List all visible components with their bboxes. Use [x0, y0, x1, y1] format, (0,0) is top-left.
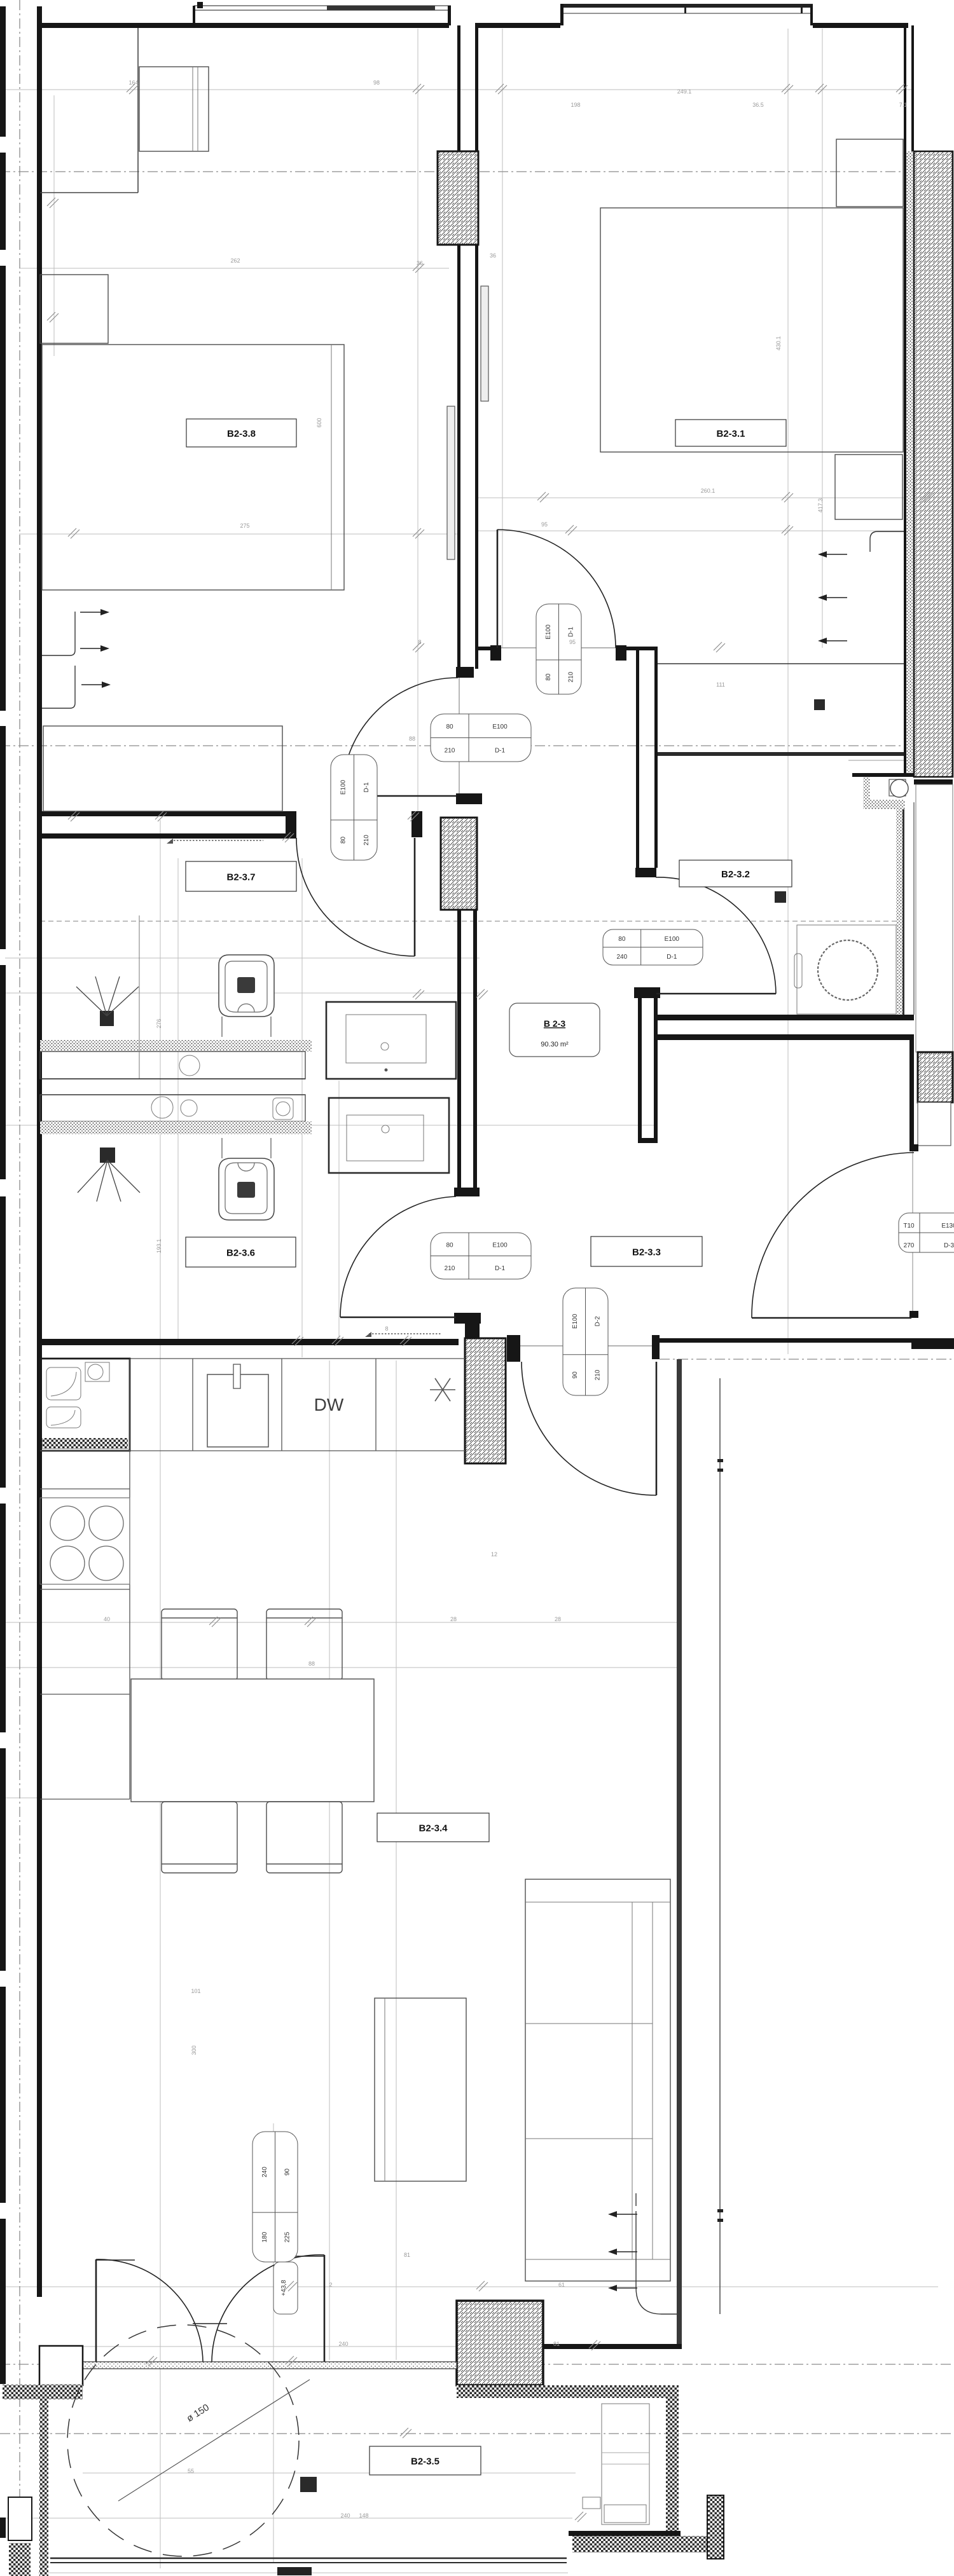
svg-text:28: 28 [555, 1616, 561, 1622]
svg-text:88: 88 [409, 736, 415, 742]
svg-text:210: 210 [445, 747, 455, 754]
svg-text:417.3: 417.3 [817, 498, 824, 513]
svg-text:2: 2 [329, 2282, 332, 2288]
svg-text:B2-3.1: B2-3.1 [716, 428, 745, 439]
svg-text:300: 300 [191, 2045, 197, 2055]
svg-text:B2-3.8: B2-3.8 [227, 428, 256, 439]
svg-text:E100: E100 [545, 624, 552, 640]
svg-text:275: 275 [240, 523, 249, 529]
svg-text:80: 80 [446, 1242, 453, 1249]
svg-text:240: 240 [616, 954, 627, 961]
svg-text:8: 8 [385, 1326, 388, 1332]
svg-text:B2-3.7: B2-3.7 [226, 872, 255, 883]
svg-text:210: 210 [567, 671, 574, 682]
svg-text:101: 101 [191, 1988, 200, 1994]
svg-text:28: 28 [450, 1616, 457, 1622]
svg-text:262: 262 [230, 257, 240, 264]
svg-text:95: 95 [569, 639, 576, 645]
svg-text:40: 40 [104, 1616, 110, 1622]
svg-text:249.1: 249.1 [677, 88, 692, 95]
svg-text:148: 148 [359, 2512, 368, 2519]
svg-text:98: 98 [373, 79, 380, 86]
svg-text:B2-3.3: B2-3.3 [632, 1247, 661, 1258]
svg-text:E100: E100 [492, 723, 508, 730]
svg-text:B2-3.6: B2-3.6 [226, 1248, 255, 1259]
svg-text:D-1: D-1 [495, 1265, 506, 1272]
svg-text:90: 90 [284, 2168, 291, 2176]
svg-text:88: 88 [308, 1661, 315, 1667]
svg-text:E100: E100 [340, 779, 347, 795]
svg-text:193.1: 193.1 [156, 1239, 162, 1254]
svg-text:B2-3.5: B2-3.5 [411, 2456, 439, 2467]
svg-text:210: 210 [445, 1265, 455, 1272]
svg-text:240: 240 [340, 2512, 350, 2519]
svg-text:90: 90 [572, 1371, 579, 1379]
svg-text:E100: E100 [572, 1313, 579, 1329]
svg-text:276: 276 [156, 1018, 162, 1028]
svg-text:80: 80 [545, 673, 552, 681]
svg-text:DW: DW [314, 1395, 344, 1415]
svg-text:7.1: 7.1 [899, 102, 908, 108]
svg-text:D-1: D-1 [667, 954, 677, 961]
svg-text:D-3: D-3 [944, 1242, 954, 1249]
svg-text:240: 240 [338, 2341, 348, 2347]
svg-text:240: 240 [261, 2167, 268, 2177]
svg-text:E100: E100 [665, 936, 680, 943]
svg-text:80: 80 [618, 936, 626, 943]
svg-text:E100: E100 [492, 1242, 508, 1249]
svg-text:T10: T10 [903, 1223, 915, 1230]
svg-text:D-1: D-1 [495, 747, 506, 754]
svg-text:12: 12 [491, 1551, 497, 1558]
svg-text:180: 180 [261, 2231, 268, 2242]
svg-text:81: 81 [404, 2252, 410, 2258]
svg-text:270: 270 [904, 1242, 915, 1249]
svg-text:+43,8: +43,8 [280, 2280, 287, 2296]
svg-text:80: 80 [446, 723, 453, 730]
svg-text:36: 36 [490, 252, 496, 259]
svg-text:B2-3.2: B2-3.2 [721, 869, 750, 880]
svg-text:D-2: D-2 [594, 1316, 601, 1327]
svg-text:260.1: 260.1 [701, 488, 715, 494]
svg-text:210: 210 [363, 835, 370, 846]
svg-text:600: 600 [316, 418, 322, 427]
svg-text:B 2-3: B 2-3 [544, 1018, 565, 1029]
svg-text:E130: E130 [941, 1223, 954, 1230]
svg-text:36: 36 [417, 260, 423, 266]
svg-text:61: 61 [558, 2282, 565, 2288]
svg-text:D-1: D-1 [567, 627, 574, 638]
svg-text:36.5: 36.5 [752, 102, 764, 108]
svg-text:81: 81 [553, 2341, 560, 2347]
svg-text:D-1: D-1 [363, 782, 370, 793]
svg-text:55: 55 [188, 2468, 194, 2474]
svg-text:198: 198 [570, 102, 580, 108]
svg-text:430.1: 430.1 [775, 336, 782, 351]
svg-text:225: 225 [284, 2231, 291, 2242]
svg-text:90.30 m²: 90.30 m² [541, 1041, 569, 1048]
svg-text:111: 111 [716, 682, 725, 688]
svg-text:80: 80 [340, 836, 347, 844]
svg-text:210: 210 [594, 1369, 601, 1380]
svg-text:95: 95 [541, 521, 548, 528]
svg-text:B2-3.4: B2-3.4 [418, 1823, 448, 1834]
